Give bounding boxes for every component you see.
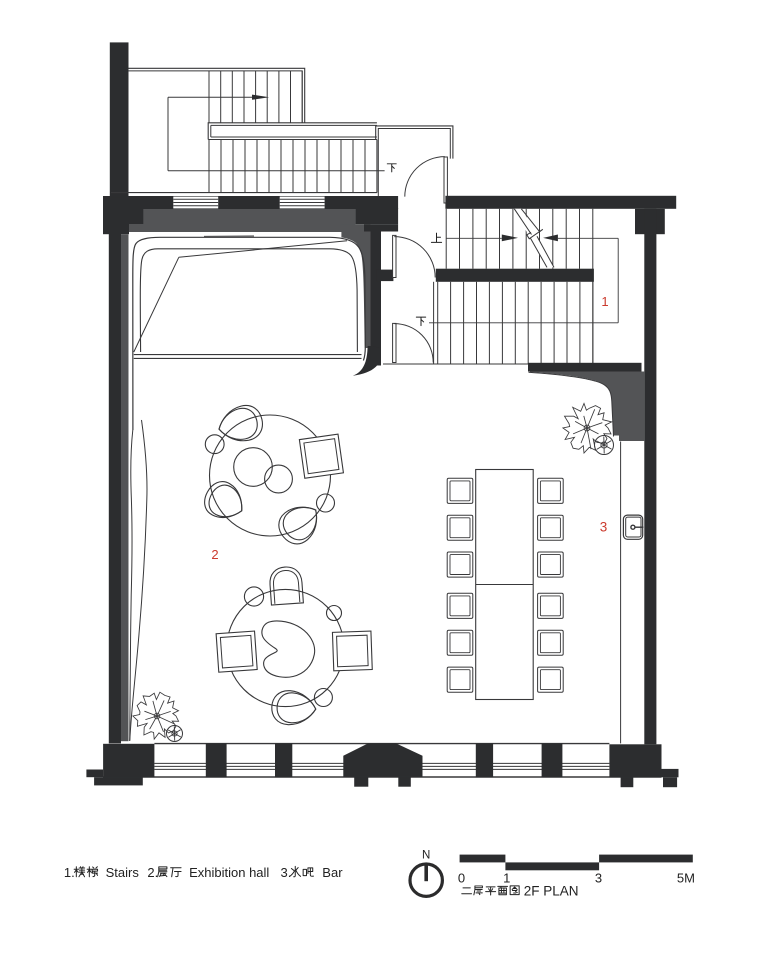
svg-text:1: 1: [601, 294, 608, 309]
svg-text:5M: 5M: [677, 871, 695, 886]
svg-text:2.: 2.: [147, 865, 158, 880]
svg-text:Exhibition hall: Exhibition hall: [189, 865, 269, 880]
svg-text:2: 2: [211, 547, 218, 562]
svg-text:Stairs: Stairs: [106, 865, 140, 880]
svg-text:1.: 1.: [64, 865, 75, 880]
svg-text:0: 0: [458, 871, 465, 886]
svg-text:3: 3: [600, 520, 608, 535]
svg-text:Bar: Bar: [322, 865, 343, 880]
svg-text:1: 1: [503, 871, 510, 886]
svg-text:3: 3: [595, 871, 602, 886]
svg-text:N: N: [422, 850, 430, 862]
svg-text:3.: 3.: [281, 865, 292, 880]
svg-text:2F PLAN: 2F PLAN: [524, 884, 579, 899]
